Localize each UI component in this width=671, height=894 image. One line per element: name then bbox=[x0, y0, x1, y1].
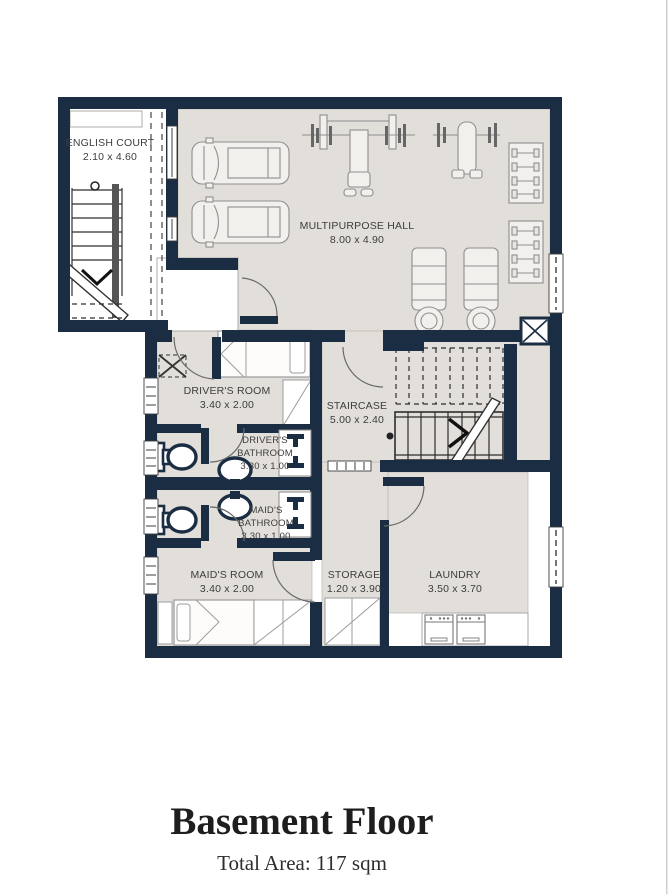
room-label-drivers-bathroom-2: BATHROOM bbox=[237, 448, 293, 459]
floor-plan-page: ENGLISH COURT 2.10 x 4.60 MULTIPURPOSE H… bbox=[0, 0, 671, 894]
room-label-laundry: LAUNDRY bbox=[429, 569, 480, 581]
closet-icon bbox=[283, 380, 311, 426]
stair-rail bbox=[112, 184, 119, 318]
room-label-drivers-bathroom-1: DRIVER'S bbox=[242, 435, 288, 446]
page-title: Basement Floor bbox=[170, 800, 433, 843]
bed-icon bbox=[158, 600, 254, 645]
window bbox=[144, 557, 158, 594]
exterior-stairs-icon bbox=[64, 182, 128, 322]
window bbox=[144, 378, 158, 414]
room-dims-multipurpose-hall: 8.00 x 4.90 bbox=[330, 234, 384, 246]
room-dims-laundry: 3.50 x 3.70 bbox=[428, 583, 482, 595]
stair-handrail-post bbox=[387, 433, 394, 440]
room-dims-english-court: 2.10 x 4.60 bbox=[83, 151, 137, 163]
total-area-text: Total Area: 117 sqm bbox=[217, 851, 387, 875]
vehicle-icon bbox=[192, 197, 289, 247]
room-label-staircase: STAIRCASE bbox=[327, 400, 388, 412]
laundry-counter bbox=[422, 613, 528, 646]
room-dims-drivers-bathroom: 3.30 x 1.00 bbox=[240, 461, 289, 472]
toilet-icon bbox=[153, 506, 196, 534]
glazing-panel bbox=[167, 217, 177, 241]
toilet-icon bbox=[153, 443, 196, 471]
treadmill-icon bbox=[464, 248, 498, 335]
newel-post bbox=[91, 182, 99, 190]
treadmill-icon bbox=[412, 248, 446, 335]
room-dims-staircase: 5.00 x 2.40 bbox=[330, 414, 384, 426]
room-dims-storage: 1.20 x 3.90 bbox=[327, 583, 381, 595]
room-dims-maids-bathroom: 3.30 x 1.00 bbox=[241, 531, 290, 542]
window bbox=[549, 527, 563, 587]
room-label-maids-room: MAID'S ROOM bbox=[190, 569, 263, 581]
room-label-multipurpose-hall: MULTIPURPOSE HALL bbox=[300, 220, 415, 232]
planter bbox=[70, 111, 142, 127]
page-edge-line bbox=[666, 0, 668, 894]
window bbox=[144, 499, 158, 534]
room-label-maids-bathroom-2: BATHROOM bbox=[238, 518, 294, 529]
room-label-english-court: ENGLISH COURT bbox=[66, 137, 155, 149]
dumbbell-rack-icon bbox=[509, 221, 543, 283]
closet-icon bbox=[325, 598, 380, 645]
room-dims-maids-room: 3.40 x 2.00 bbox=[200, 583, 254, 595]
basement-floor-plan: ENGLISH COURT 2.10 x 4.60 MULTIPURPOSE H… bbox=[0, 0, 671, 894]
low-wall-vent bbox=[328, 461, 371, 471]
window bbox=[144, 441, 158, 475]
shaft-icon bbox=[521, 318, 549, 344]
closet-icon bbox=[254, 600, 312, 645]
room-label-storage: STORAGE bbox=[328, 569, 381, 581]
vehicle-icon bbox=[192, 138, 289, 188]
washing-machine-icon bbox=[457, 615, 485, 644]
room-label-maids-bathroom-1: MAID'S bbox=[249, 505, 282, 516]
dumbbell-rack-icon bbox=[509, 143, 543, 203]
window bbox=[549, 254, 563, 313]
footer: Basement Floor Total Area: 117 sqm bbox=[170, 800, 433, 875]
room-label-drivers-room: DRIVER'S ROOM bbox=[184, 385, 271, 397]
washing-machine-icon bbox=[425, 615, 453, 644]
glazing-panel bbox=[167, 126, 177, 179]
room-dims-drivers-room: 3.40 x 2.00 bbox=[200, 399, 254, 411]
